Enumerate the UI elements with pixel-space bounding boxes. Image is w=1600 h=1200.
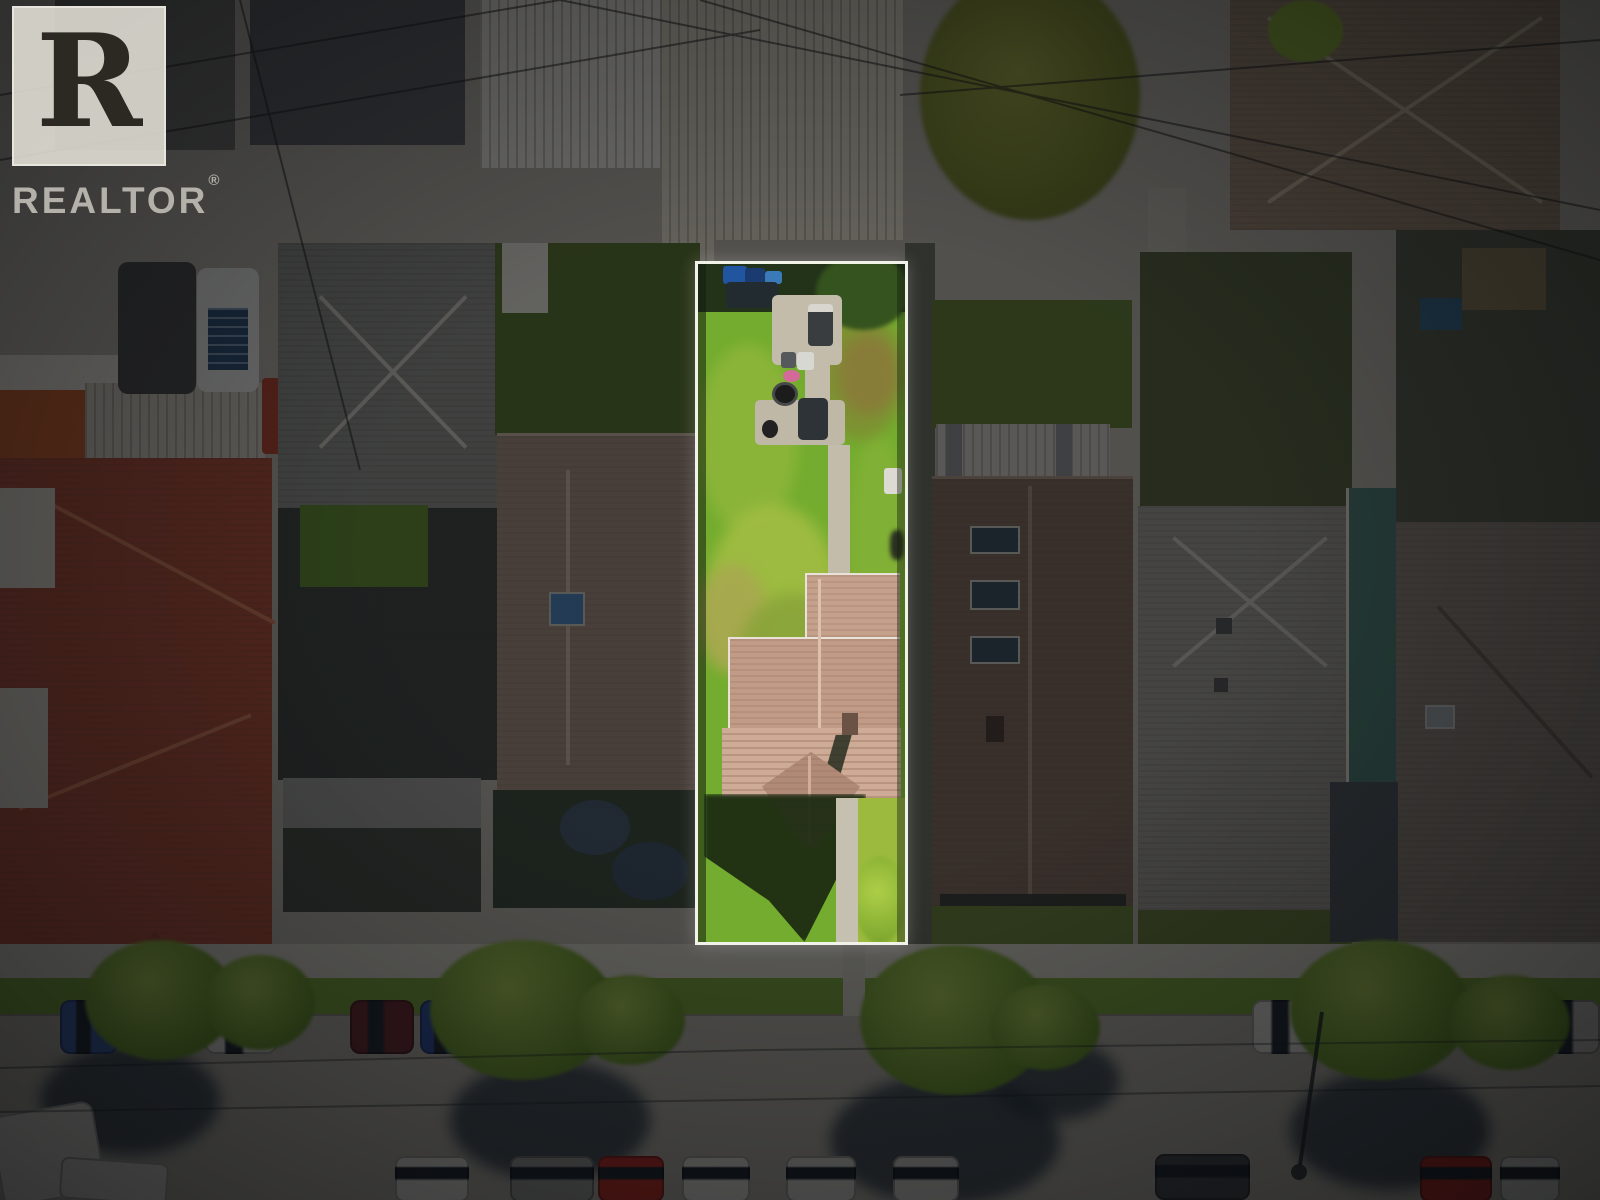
patio-chair: [797, 352, 814, 370]
realtor-logo: R REALTOR®: [12, 6, 212, 222]
front-walkway: [836, 798, 858, 942]
garden-cart: [808, 304, 833, 346]
realtor-logo-text: REALTOR®: [12, 172, 212, 222]
property-boundary: [695, 261, 908, 945]
realtor-logo-r: R: [36, 18, 142, 146]
fire-pit: [772, 382, 798, 406]
realtor-logo-mark: R: [12, 6, 166, 166]
shrub-patch: [838, 334, 898, 414]
lot-fence-right: [897, 264, 905, 942]
roof-ridge: [818, 579, 821, 729]
chimney: [842, 713, 858, 735]
subject-house-roof-main: [728, 637, 900, 732]
bin-cluster: [726, 282, 778, 308]
bbq-grill: [798, 398, 828, 440]
flower-bed: [783, 370, 800, 382]
patio-table: [781, 352, 796, 368]
registered-mark: ®: [208, 172, 219, 189]
storage-bins: [745, 268, 765, 283]
lot-fence-left: [698, 264, 706, 942]
planter-pot: [762, 420, 778, 438]
aerial-photo-scene: R REALTOR®: [0, 0, 1600, 1200]
